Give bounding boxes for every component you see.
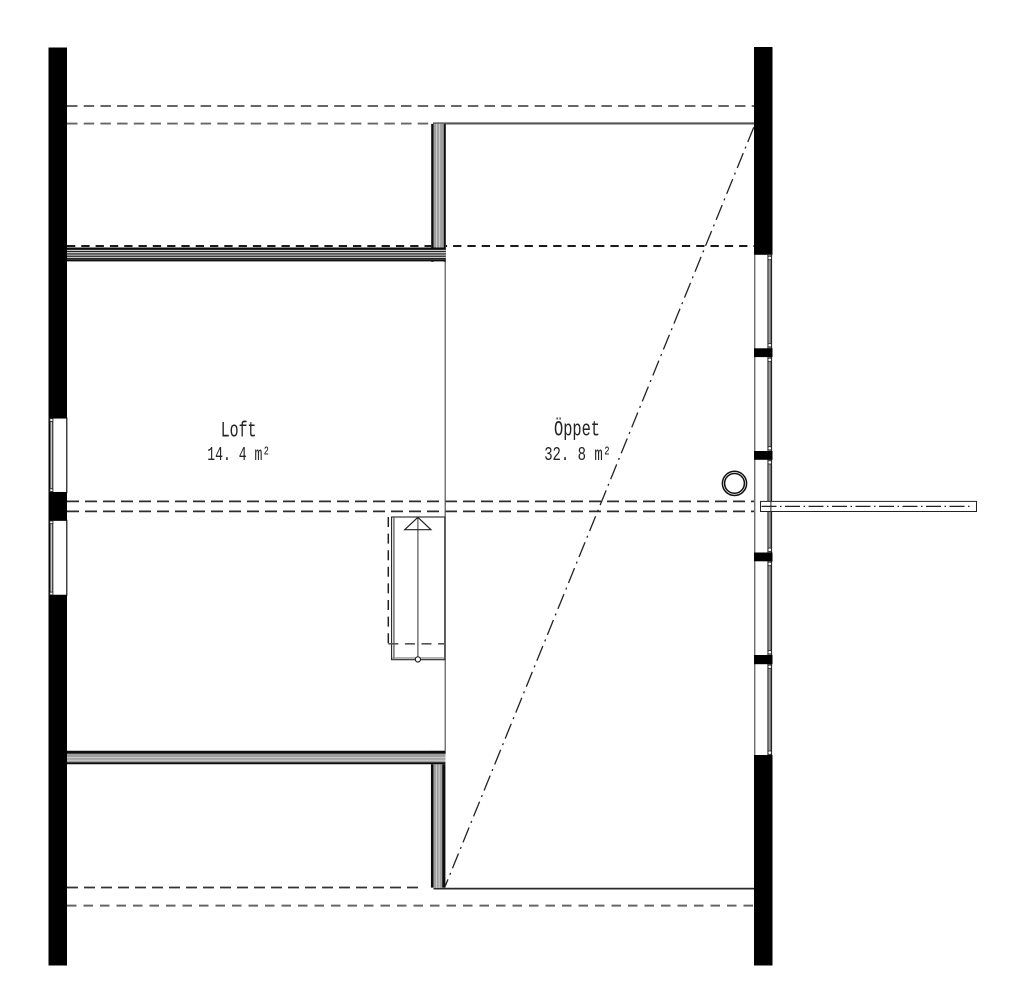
svg-text:32. 8 m²: 32. 8 m² — [544, 444, 611, 466]
svg-text:14. 4 m²: 14. 4 m² — [207, 444, 270, 466]
svg-text:Öppet: Öppet — [554, 417, 600, 443]
svg-text:Loft: Loft — [221, 417, 257, 443]
